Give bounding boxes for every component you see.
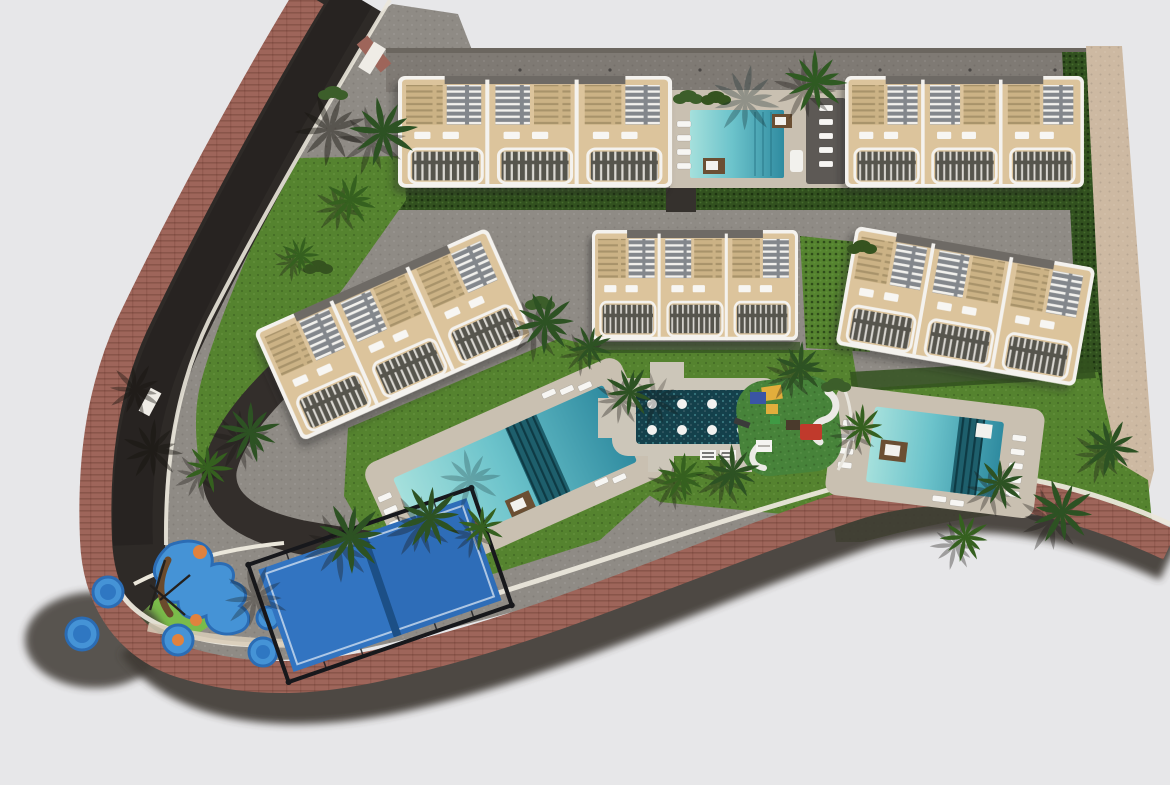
play-slide-red — [800, 424, 822, 440]
splash-circle-inner — [73, 625, 91, 643]
cabana-bed — [790, 150, 803, 172]
play-box-yellow — [766, 404, 778, 414]
hedge-gap-path — [666, 188, 696, 212]
sun-lounger — [677, 149, 691, 155]
site-plan-render — [0, 0, 1170, 785]
hedge-strip-texture — [388, 188, 1082, 210]
north-hedge-band — [388, 188, 1082, 212]
play-canopy-blue — [750, 392, 766, 404]
daybed-cushion — [884, 444, 900, 457]
sun-lounger — [677, 135, 691, 141]
sun-lounger — [819, 161, 833, 167]
daybed — [703, 158, 725, 174]
sun-lounger — [677, 121, 691, 127]
sun-lounger — [677, 163, 691, 169]
building-north-west — [398, 76, 672, 188]
sun-lounger — [819, 147, 833, 153]
splash-orange-pad — [190, 614, 202, 626]
daybed-cushion — [775, 117, 786, 125]
play-box-brown — [786, 420, 800, 430]
center-hedge-strip — [592, 342, 800, 353]
bench — [700, 450, 716, 460]
daybed — [772, 114, 792, 128]
splash-circle-orange — [172, 634, 184, 646]
picnic-table — [756, 440, 772, 452]
building-north-east — [845, 76, 1084, 188]
sun-lounger — [819, 119, 833, 125]
building-center — [592, 230, 798, 340]
splash-orange-pad — [193, 545, 207, 559]
daybed — [879, 439, 908, 462]
parking-edge-wall — [386, 48, 1088, 53]
plaza-stub-north — [650, 362, 684, 384]
splash-circle-inner — [256, 645, 270, 659]
site-plan-canvas — [0, 0, 1170, 785]
sun-lounger — [819, 133, 833, 139]
splash-circle-inner — [100, 584, 116, 600]
play-tile-green — [770, 416, 780, 424]
cabana-bed — [975, 423, 993, 439]
daybed-cushion — [706, 161, 718, 170]
